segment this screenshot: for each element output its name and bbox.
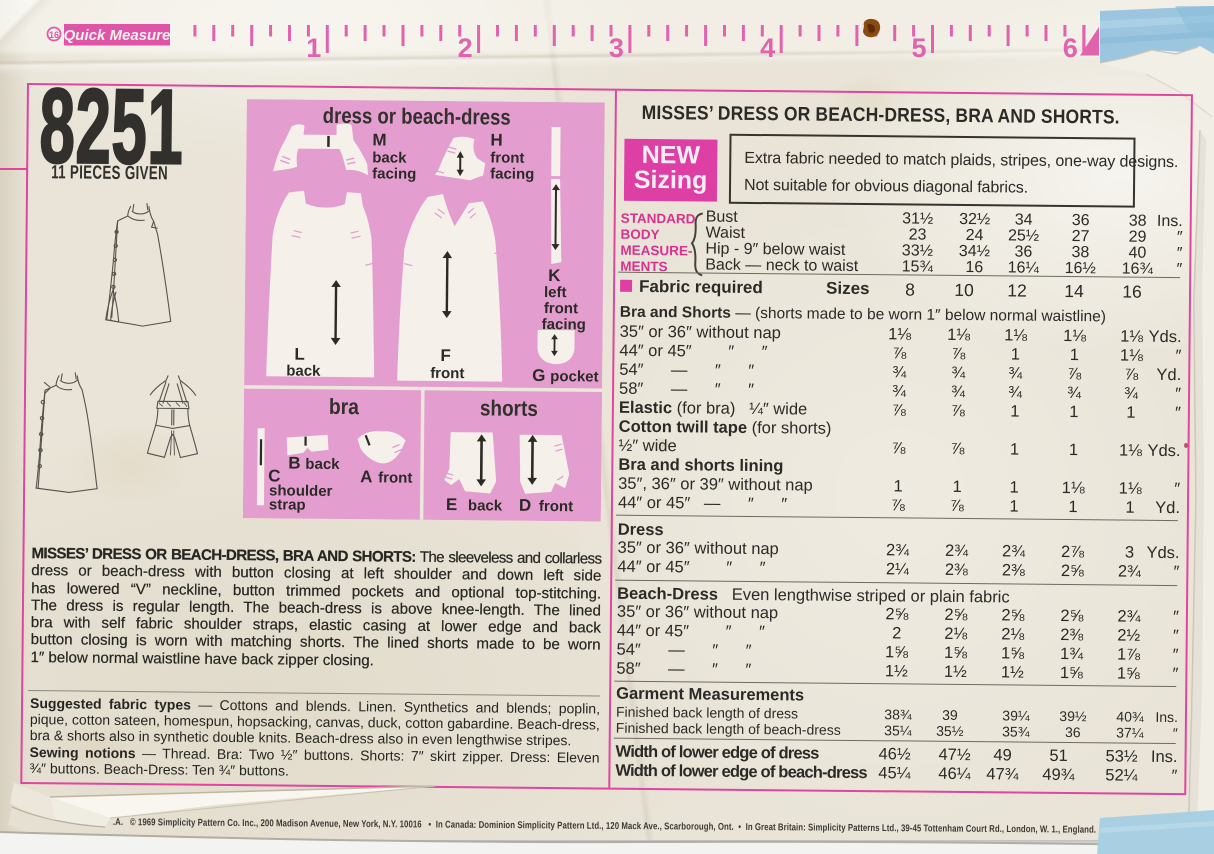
svg-text:pocket: pocket bbox=[550, 368, 599, 385]
svg-text:B: B bbox=[288, 454, 300, 473]
svg-text:front: front bbox=[490, 149, 524, 166]
svg-text:3: 3 bbox=[609, 33, 624, 63]
svg-text:back: back bbox=[468, 497, 503, 514]
svg-text:back: back bbox=[286, 363, 321, 380]
svg-text:1: 1 bbox=[306, 33, 321, 63]
svg-text:A: A bbox=[360, 467, 372, 486]
svg-text:shorts: shorts bbox=[480, 395, 538, 421]
svg-text:H: H bbox=[490, 130, 502, 149]
svg-text:bra: bra bbox=[329, 394, 360, 419]
svg-text:F: F bbox=[440, 346, 451, 365]
svg-text:front: front bbox=[378, 469, 412, 486]
svg-text:strap: strap bbox=[269, 496, 306, 513]
svg-text:Quick Measure: Quick Measure bbox=[64, 27, 171, 44]
svg-text:K: K bbox=[548, 266, 561, 285]
svg-text:2: 2 bbox=[458, 33, 473, 63]
svg-text:16: 16 bbox=[49, 30, 59, 40]
svg-text:E: E bbox=[446, 495, 458, 514]
svg-text:left: left bbox=[544, 284, 567, 301]
svg-text:front: front bbox=[544, 300, 578, 317]
svg-text:5: 5 bbox=[911, 33, 926, 63]
svg-text:M: M bbox=[372, 130, 386, 149]
svg-text:L: L bbox=[294, 345, 305, 364]
svg-text:4: 4 bbox=[760, 33, 775, 63]
svg-text:D: D bbox=[519, 496, 531, 515]
svg-text:front: front bbox=[539, 498, 573, 515]
svg-text:back: back bbox=[305, 456, 340, 473]
svg-text:front: front bbox=[430, 365, 464, 382]
svg-text:facing: facing bbox=[490, 165, 534, 182]
svg-text:G: G bbox=[532, 366, 545, 385]
svg-text:6: 6 bbox=[1063, 33, 1078, 63]
svg-text:facing: facing bbox=[372, 165, 416, 182]
svg-text:back: back bbox=[372, 149, 407, 166]
